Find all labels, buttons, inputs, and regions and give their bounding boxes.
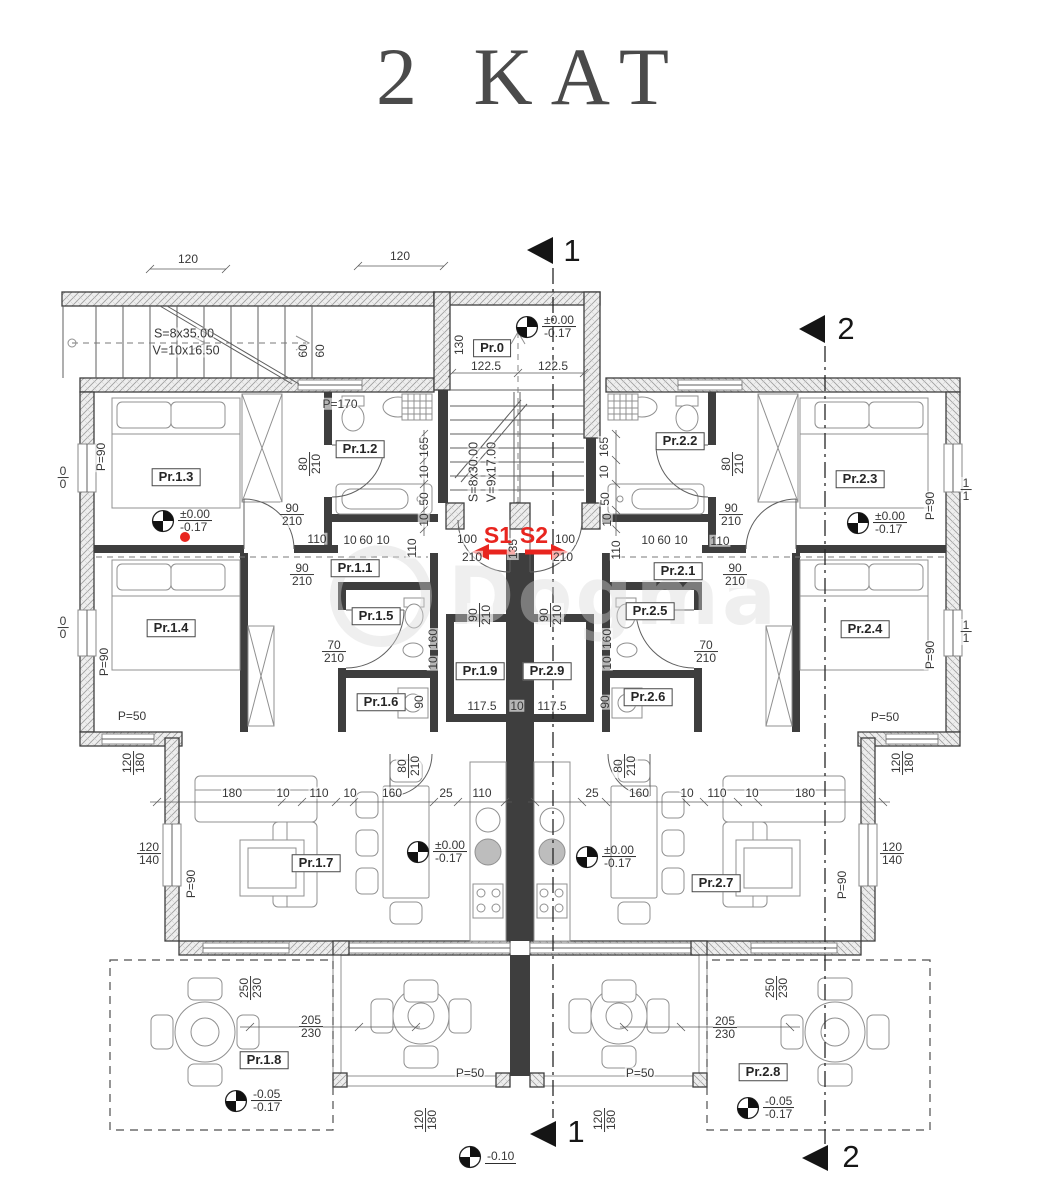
dimension-label: 10 [598, 464, 610, 479]
dimension-label: 10 [418, 512, 430, 527]
elevation-marker: ±0.00-0.17 [575, 844, 636, 870]
stair-spec-label: V=10x16.50 [152, 345, 219, 358]
dimension-label: 10 [342, 534, 357, 546]
dimension-fraction: 120180 [890, 751, 916, 775]
red-axis-label: S2 [520, 524, 548, 548]
floor-plan-page: 2 KAT Dogma [0, 0, 1063, 1200]
room-label: Pr.2.8 [739, 1063, 788, 1081]
section-number: 2 [837, 313, 854, 345]
section-number: 2 [842, 1141, 859, 1173]
level-symbol-icon [515, 315, 539, 339]
dimension-label: 25 [438, 787, 453, 799]
dimension-label: 210 [552, 551, 574, 563]
level-symbol-icon [458, 1145, 482, 1169]
dimension-label: 100 [554, 533, 576, 545]
dimension-label: 10 [601, 512, 613, 527]
parapet-height-label: P=90 [924, 640, 936, 670]
dimension-label: 110 [709, 535, 730, 547]
dimension-label: 117.5 [466, 700, 497, 712]
level-symbol-icon [406, 840, 430, 864]
dimension-label: 10 [601, 655, 613, 670]
dimension-label: 117.5 [536, 700, 567, 712]
dimension-fraction: 00 [58, 465, 69, 491]
dimension-label: 10 [509, 700, 524, 712]
dimension-label: 160 [601, 628, 613, 650]
dimension-fraction: 11 [961, 477, 972, 503]
dimension-label: 10 [673, 534, 688, 546]
stair-spec-label: S=8x35.00 [154, 328, 214, 341]
room-label: Pr.2.7 [692, 874, 741, 892]
dimension-fraction: 120180 [413, 1108, 439, 1132]
dimension-fraction: 120180 [121, 751, 147, 775]
dimension-label: 110 [306, 533, 327, 545]
elevation-marker: -0.05-0.17 [736, 1095, 794, 1121]
dimension-label: 60 [656, 534, 671, 546]
elevation-marker: ±0.00-0.17 [151, 508, 212, 534]
dimension-label: 210 [461, 551, 483, 563]
dimension-fraction: 120140 [137, 841, 161, 867]
dimension-label: 165 [598, 436, 610, 458]
dimension-label: 120 [389, 250, 411, 262]
dimension-label: 160 [427, 628, 439, 650]
dimension-fraction: 250230 [764, 976, 790, 1000]
dimension-fraction: 90210 [280, 502, 304, 528]
parapet-height-label: P=90 [95, 442, 107, 472]
parapet-height-label: P=50 [870, 711, 900, 723]
dimension-label: 50 [599, 491, 611, 506]
room-label: Pr.1.2 [336, 440, 385, 458]
dimension-label: 110 [471, 787, 492, 799]
dimension-label: 60 [314, 343, 326, 358]
level-symbol-icon [151, 509, 175, 533]
room-label: Pr.1.3 [152, 468, 201, 486]
level-symbol-icon [575, 845, 599, 869]
room-label: Pr.2.2 [656, 432, 705, 450]
dimension-fraction: 80210 [396, 754, 422, 778]
dimension-label: 180 [794, 787, 816, 799]
dimension-label: 10 [744, 787, 759, 799]
room-label: Pr.2.1 [654, 562, 703, 580]
dimension-label: 122.5 [470, 360, 502, 372]
stair-spec-label: V=9x17.00 [486, 442, 499, 502]
room-label: Pr.2.9 [523, 662, 572, 680]
dimension-fraction: 70210 [322, 639, 346, 665]
dimension-label: 50 [418, 491, 430, 506]
room-label: Pr.1.6 [357, 693, 406, 711]
dimension-fraction: 205230 [713, 1015, 737, 1041]
stair-spec-label: S=8x30.00 [468, 442, 481, 502]
dimension-label: 60 [358, 534, 373, 546]
dimension-label: 10 [418, 464, 430, 479]
dimension-fraction: 90210 [719, 502, 743, 528]
dimension-label: 10 [427, 655, 439, 670]
parapet-height-label: P=90 [924, 491, 936, 521]
room-label: Pr.2.6 [624, 688, 673, 706]
dimension-label: 100 [456, 533, 478, 545]
room-label: Pr.1.8 [240, 1051, 289, 1069]
room-label: Pr.1.9 [456, 662, 505, 680]
dimension-label: 110 [706, 787, 727, 799]
section-number: 1 [563, 235, 580, 267]
parapet-height-label: P=50 [455, 1067, 485, 1079]
dimension-label: 90 [413, 694, 425, 709]
dimension-fraction: 90210 [467, 603, 493, 627]
parapet-height-label: P=50 [117, 710, 147, 722]
room-label: Pr.1.1 [331, 559, 380, 577]
dimension-label: 10 [679, 787, 694, 799]
elevation-marker: ±0.00-0.17 [515, 314, 576, 340]
dimension-fraction: 80210 [720, 452, 746, 476]
elevation-marker: -0.05-0.17 [224, 1088, 282, 1114]
elevation-marker: ±0.00-0.17 [406, 839, 467, 865]
dimension-label: 10 [375, 534, 390, 546]
room-label: Pr.1.4 [147, 619, 196, 637]
dimension-label: 165 [418, 436, 430, 458]
parapet-height-label: P=90 [836, 870, 848, 900]
room-label: Pr.2.4 [841, 620, 890, 638]
level-symbol-icon [736, 1096, 760, 1120]
dimension-fraction: 90210 [290, 562, 314, 588]
dimension-fraction: 120180 [592, 1108, 618, 1132]
dimension-fraction: 70210 [694, 639, 718, 665]
dimension-label: 25 [584, 787, 599, 799]
elevation-marker: ±0.00-0.17 [846, 510, 907, 536]
dimension-label: 160 [381, 787, 403, 799]
dimension-label: 160 [628, 787, 650, 799]
dimension-fraction: 205230 [299, 1014, 323, 1040]
dimension-fraction: 90210 [538, 603, 564, 627]
dimension-label: 60 [297, 343, 309, 358]
level-symbol-icon [846, 511, 870, 535]
dimension-label: 110 [308, 787, 329, 799]
dimension-label: 10 [640, 534, 655, 546]
dimension-label: 110 [610, 539, 622, 560]
dimension-label: 90 [599, 694, 611, 709]
room-label: Pr.2.3 [836, 470, 885, 488]
dimension-label: 10 [342, 787, 357, 799]
dimension-label: 180 [221, 787, 243, 799]
room-label: Pr.1.5 [352, 607, 401, 625]
room-label: Pr.1.7 [292, 854, 341, 872]
plan-labels: Pr.0Pr.1.3Pr.1.2Pr.1.1Pr.1.4Pr.1.5Pr.1.6… [0, 0, 1063, 1200]
parapet-height-label: P=90 [98, 647, 110, 677]
level-symbol-icon [224, 1089, 248, 1113]
room-label: Pr.0 [473, 339, 511, 357]
dimension-label: 122.5 [537, 360, 569, 372]
dimension-fraction: 120140 [880, 841, 904, 867]
parapet-height-label: P=90 [185, 869, 197, 899]
elevation-marker: -0.10 [458, 1145, 516, 1169]
dimension-label: 110 [406, 537, 418, 558]
parapet-height-label: P=50 [625, 1067, 655, 1079]
dimension-label: 120 [177, 253, 199, 265]
dimension-fraction: 250230 [238, 976, 264, 1000]
dimension-fraction: 80210 [297, 452, 323, 476]
parapet-height-label: P=170 [321, 398, 358, 410]
dimension-fraction: 00 [58, 615, 69, 641]
dimension-fraction: 11 [961, 619, 972, 645]
dimension-label: 10 [275, 787, 290, 799]
red-axis-label: S1 [484, 524, 512, 548]
room-label: Pr.2.5 [626, 602, 675, 620]
dimension-fraction: 90210 [723, 562, 747, 588]
section-number: 1 [567, 1116, 584, 1148]
dimension-label: 130 [453, 334, 465, 356]
dimension-fraction: 80210 [612, 754, 638, 778]
